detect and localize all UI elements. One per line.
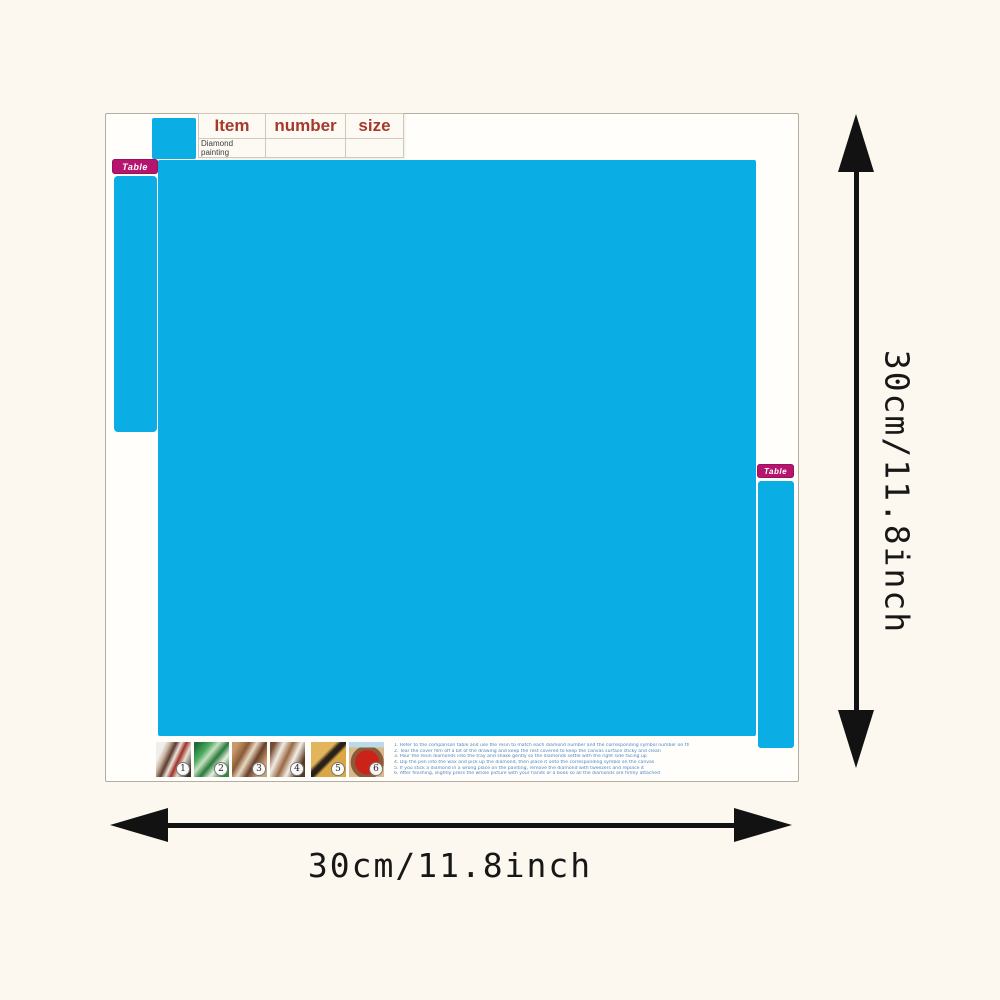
horizontal-dimension-arrow — [160, 823, 740, 828]
table-tag-right: Table — [757, 464, 794, 478]
instruction-line: 4. Dip the pen into the wax and pick up … — [394, 760, 689, 766]
step-image-6: 6 — [348, 741, 385, 778]
spec-size-cell — [346, 139, 404, 158]
instruction-line: 6. After finishing, slightly press the w… — [394, 771, 689, 777]
product-diagram: Item number size Diamond painting Table … — [0, 0, 1000, 1000]
canvas-right-flap — [758, 481, 794, 748]
step-number-badge: 4 — [290, 762, 304, 776]
spec-item-name: Diamond painting — [199, 139, 266, 158]
product-sheet: Item number size Diamond painting Table … — [105, 113, 799, 782]
spec-col-item: Item — [199, 114, 266, 139]
height-dimension-label: 30cm/11.8inch — [878, 350, 917, 634]
step-number-badge: 3 — [252, 762, 266, 776]
width-dimension-label: 30cm/11.8inch — [250, 846, 650, 885]
step-number-badge: 2 — [214, 762, 228, 776]
arrow-down-icon — [838, 710, 874, 768]
step-image-2: 2 — [193, 741, 230, 778]
arrow-right-icon — [734, 808, 792, 842]
step-number-badge: 6 — [369, 762, 383, 776]
spec-table: Item number size Diamond painting — [198, 113, 404, 158]
spec-number-cell — [266, 139, 346, 158]
canvas-corner-flap — [152, 118, 196, 159]
step-image-4: 4 — [269, 741, 306, 778]
spec-col-number: number — [266, 114, 346, 139]
canvas-left-flap — [114, 176, 157, 432]
instruction-line: 1. Refer to the comparison table and use… — [394, 743, 689, 749]
step-number-badge: 1 — [176, 762, 190, 776]
step-image-1: 1 — [155, 741, 192, 778]
step-image-3: 3 — [231, 741, 268, 778]
canvas-main-area — [158, 160, 756, 736]
instruction-text-block: 1. Refer to the comparison table and use… — [394, 743, 689, 777]
spec-col-size: size — [346, 114, 404, 139]
step-number-badge: 5 — [331, 762, 345, 776]
table-tag-left: Table — [112, 159, 158, 174]
instruction-steps: 1 2 3 4 5 6 — [155, 741, 385, 778]
vertical-dimension-arrow — [854, 160, 859, 720]
step-image-5: 5 — [310, 741, 347, 778]
